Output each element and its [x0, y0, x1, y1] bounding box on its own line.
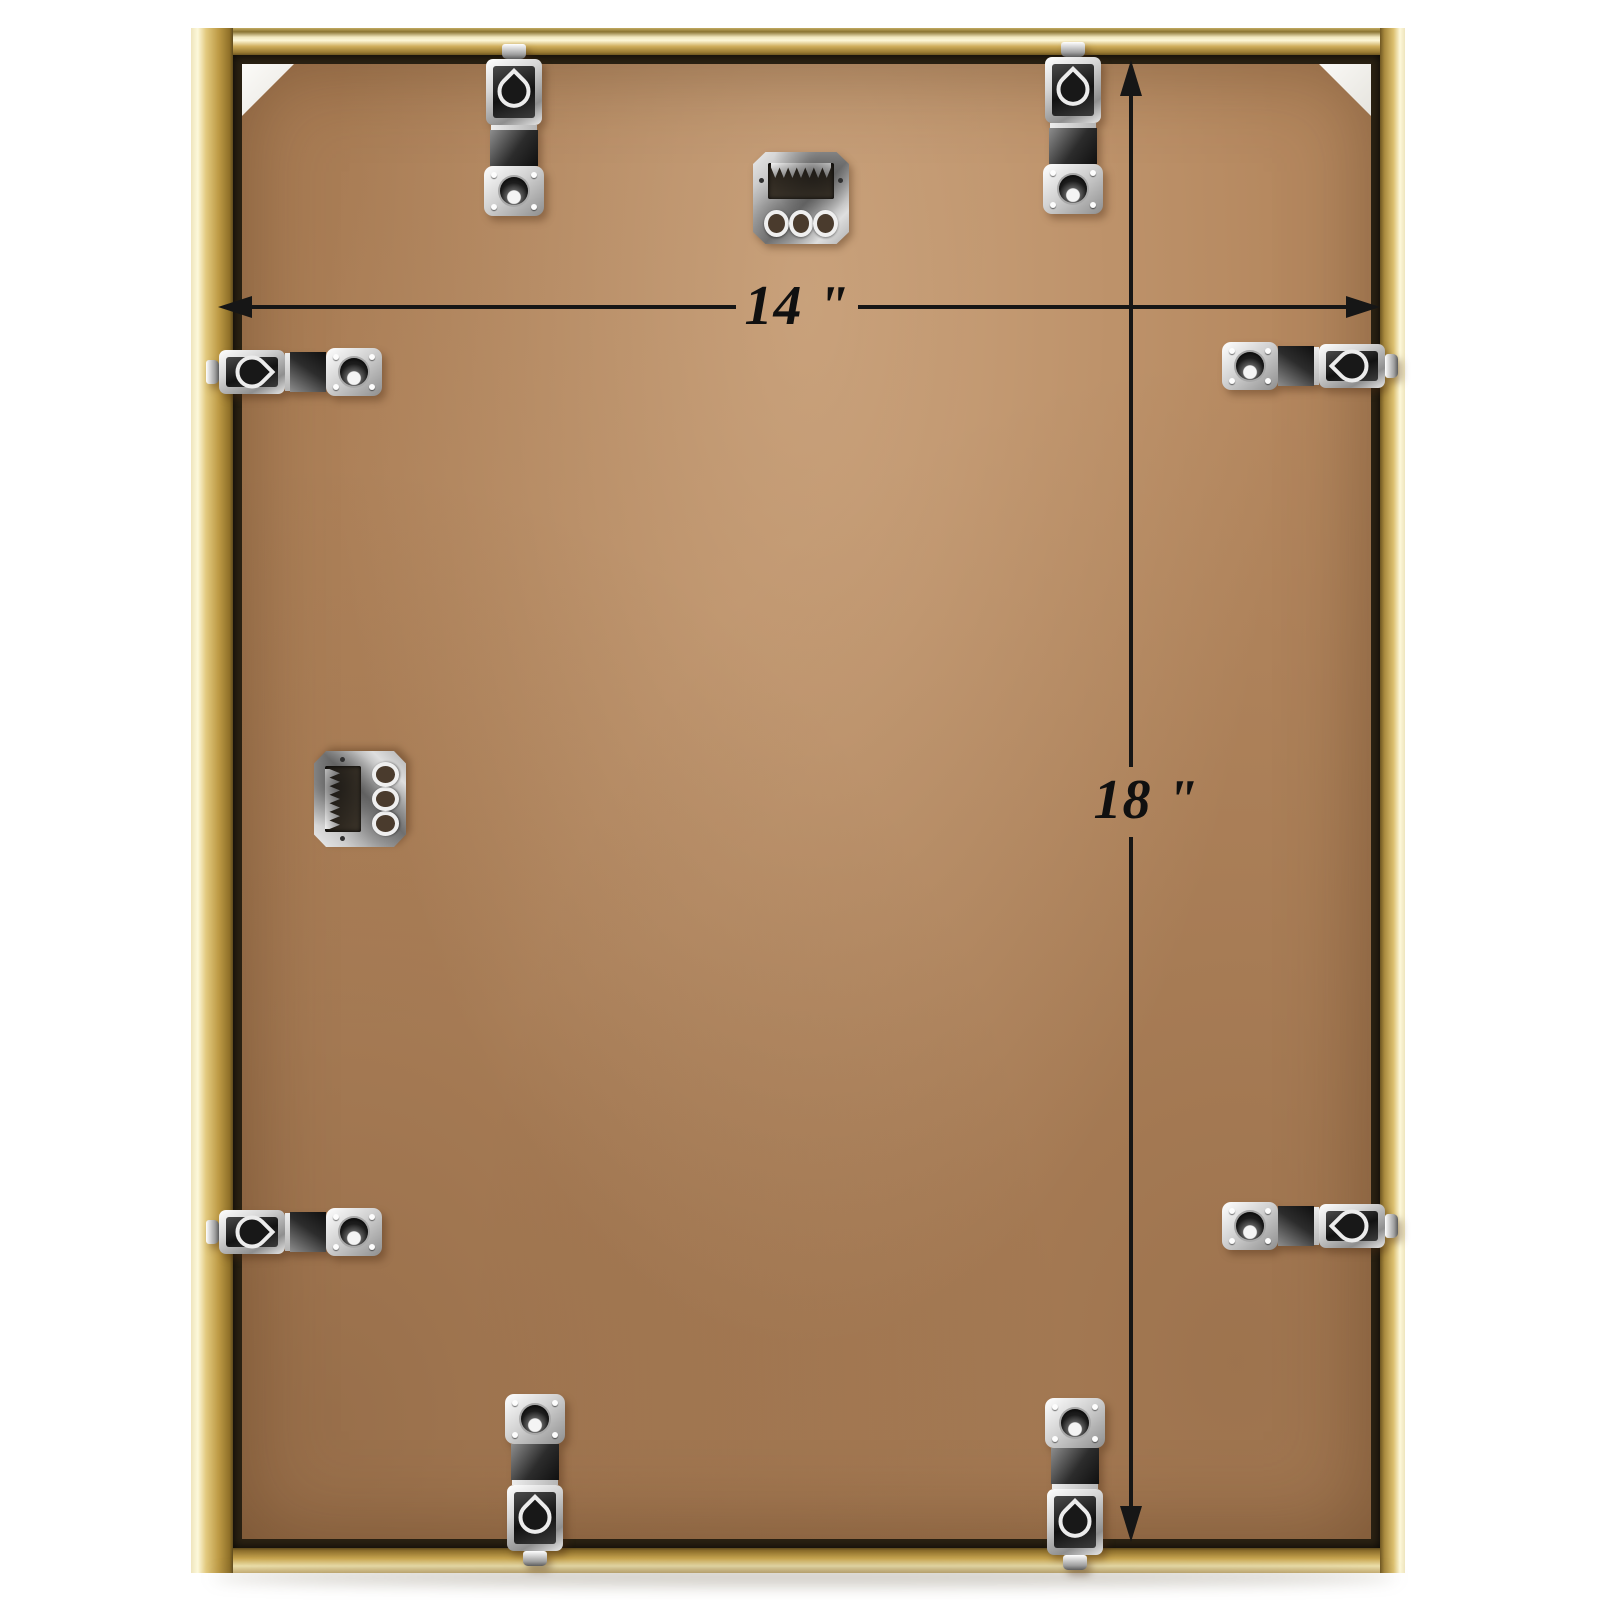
hanging-clip-right-upper	[1222, 342, 1398, 390]
hanging-clip-left-lower	[206, 1208, 382, 1256]
screw-icon	[1265, 378, 1271, 384]
screw-icon	[1229, 378, 1235, 384]
screw-icon	[1090, 202, 1096, 208]
screw-icon	[369, 384, 375, 390]
clip-hook-icon	[206, 1220, 219, 1244]
keyhole-icon	[340, 358, 368, 386]
screw-icon	[1229, 1208, 1235, 1214]
screw-icon	[369, 354, 375, 360]
screw-icon	[1265, 1238, 1271, 1244]
clip-link	[1049, 128, 1097, 164]
screw-hole-icon	[759, 178, 764, 183]
clip-screw-plate	[1222, 1202, 1278, 1250]
clip-link	[290, 352, 326, 392]
width-dimension-line	[246, 305, 736, 309]
screw-icon	[1052, 1436, 1058, 1442]
screw-icon	[491, 204, 497, 210]
keyhole-icon	[340, 1218, 368, 1246]
clip-teardrop-slot-icon	[1047, 1489, 1103, 1555]
hanging-clip-left-upper	[206, 348, 382, 396]
hanging-clip-bottom-right	[1045, 1398, 1105, 1570]
screw-icon	[552, 1432, 558, 1438]
clip-teardrop-slot-icon	[1319, 344, 1385, 388]
clip-screw-plate	[1043, 164, 1103, 214]
clip-hook-icon	[1385, 1214, 1398, 1238]
screw-icon	[1090, 170, 1096, 176]
product-photo-frame-back: 14 " 18 "	[0, 0, 1600, 1600]
clip-screw-plate	[326, 1208, 382, 1256]
screw-icon	[512, 1400, 518, 1406]
screw-icon	[1092, 1436, 1098, 1442]
hanging-clip-top-left	[484, 44, 544, 216]
screw-icon	[333, 384, 339, 390]
screw-icon	[491, 172, 497, 178]
clip-screw-plate	[326, 348, 382, 396]
clip-teardrop-slot-icon	[1045, 57, 1101, 123]
screw-icon	[1050, 170, 1056, 176]
teardrop-cutout-icon	[491, 68, 538, 115]
height-dimension-line	[1129, 837, 1133, 1509]
hole-icon	[764, 210, 789, 237]
screw-icon	[552, 1400, 558, 1406]
screw-icon	[333, 354, 339, 360]
sawtooth-plate-icon	[314, 751, 406, 847]
screw-hole-icon	[340, 836, 345, 841]
teardrop-cutout-icon	[512, 1494, 559, 1541]
clip-screw-plate	[1222, 342, 1278, 390]
width-dimension-label: 14 "	[744, 274, 849, 338]
teardrop-cutout-icon	[1329, 343, 1376, 390]
clip-hook-icon	[1385, 354, 1398, 378]
screw-icon	[333, 1214, 339, 1220]
hanging-clip-bottom-left	[505, 1394, 565, 1566]
teardrop-cutout-icon	[1052, 1498, 1099, 1545]
screw-icon	[512, 1432, 518, 1438]
clip-teardrop-slot-icon	[507, 1485, 563, 1551]
clip-teardrop-slot-icon	[1319, 1204, 1385, 1248]
arrowhead-right-icon	[1346, 296, 1380, 318]
screw-icon	[1050, 202, 1056, 208]
hole-icon	[813, 210, 838, 237]
frame-top-rail	[191, 28, 1405, 55]
clip-teardrop-slot-icon	[486, 59, 542, 125]
screw-icon	[531, 204, 537, 210]
screw-icon	[1265, 1208, 1271, 1214]
clip-screw-plate	[1045, 1398, 1105, 1448]
screw-icon	[1229, 1238, 1235, 1244]
clip-screw-plate	[484, 166, 544, 216]
teardrop-cutout-icon	[1050, 66, 1097, 113]
sawtooth-holes	[764, 210, 838, 237]
keyhole-icon	[1236, 1212, 1264, 1240]
clip-teardrop-slot-icon	[219, 1210, 285, 1254]
keyhole-icon	[1236, 352, 1264, 380]
sawtooth-teeth-icon	[771, 163, 831, 178]
sawtooth-cutout	[768, 163, 834, 199]
keyhole-icon	[1059, 175, 1087, 203]
clip-link	[1278, 346, 1314, 386]
arrowhead-down-icon	[1120, 1506, 1142, 1542]
screw-icon	[1052, 1404, 1058, 1410]
hole-icon	[372, 811, 399, 836]
sawtooth-hanger-top	[753, 152, 849, 244]
screw-icon	[1265, 348, 1271, 354]
height-dimension-line	[1129, 90, 1133, 767]
keyhole-icon	[1061, 1409, 1089, 1437]
clip-teardrop-slot-icon	[219, 350, 285, 394]
clip-screw-plate	[505, 1394, 565, 1444]
clip-hook-icon	[1063, 1555, 1087, 1570]
clip-hook-icon	[502, 44, 526, 59]
hole-icon	[372, 762, 399, 787]
clip-link	[490, 130, 538, 166]
keyhole-icon	[500, 177, 528, 205]
hole-icon	[372, 787, 399, 812]
screw-icon	[1092, 1404, 1098, 1410]
screw-icon	[531, 172, 537, 178]
clip-link	[290, 1212, 326, 1252]
clip-link	[511, 1444, 559, 1480]
screw-icon	[369, 1244, 375, 1250]
hole-icon	[789, 210, 814, 237]
sawtooth-teeth-icon	[325, 769, 340, 829]
screw-icon	[1229, 348, 1235, 354]
height-dimension-label: 18 "	[1093, 768, 1198, 832]
screw-hole-icon	[838, 178, 843, 183]
teardrop-cutout-icon	[1329, 1203, 1376, 1250]
frame-left-rail	[191, 28, 233, 1573]
teardrop-cutout-icon	[229, 1209, 276, 1256]
screw-icon	[369, 1214, 375, 1220]
teardrop-cutout-icon	[229, 349, 276, 396]
clip-hook-icon	[1061, 42, 1085, 57]
sawtooth-holes	[372, 762, 399, 836]
hanging-clip-top-right	[1043, 42, 1103, 214]
frame-right-rail	[1380, 28, 1405, 1573]
screw-icon	[333, 1244, 339, 1250]
keyhole-icon	[521, 1405, 549, 1433]
frame-drop-shadow	[212, 1569, 1397, 1585]
clip-hook-icon	[523, 1551, 547, 1566]
hanging-clip-right-lower	[1222, 1202, 1398, 1250]
sawtooth-cutout	[325, 766, 361, 832]
clip-link	[1278, 1206, 1314, 1246]
clip-link	[1051, 1448, 1099, 1484]
screw-hole-icon	[340, 757, 345, 762]
clip-hook-icon	[206, 360, 219, 384]
sawtooth-plate-icon	[753, 152, 849, 244]
width-dimension-line	[858, 305, 1350, 309]
sawtooth-hanger-left	[314, 751, 406, 847]
